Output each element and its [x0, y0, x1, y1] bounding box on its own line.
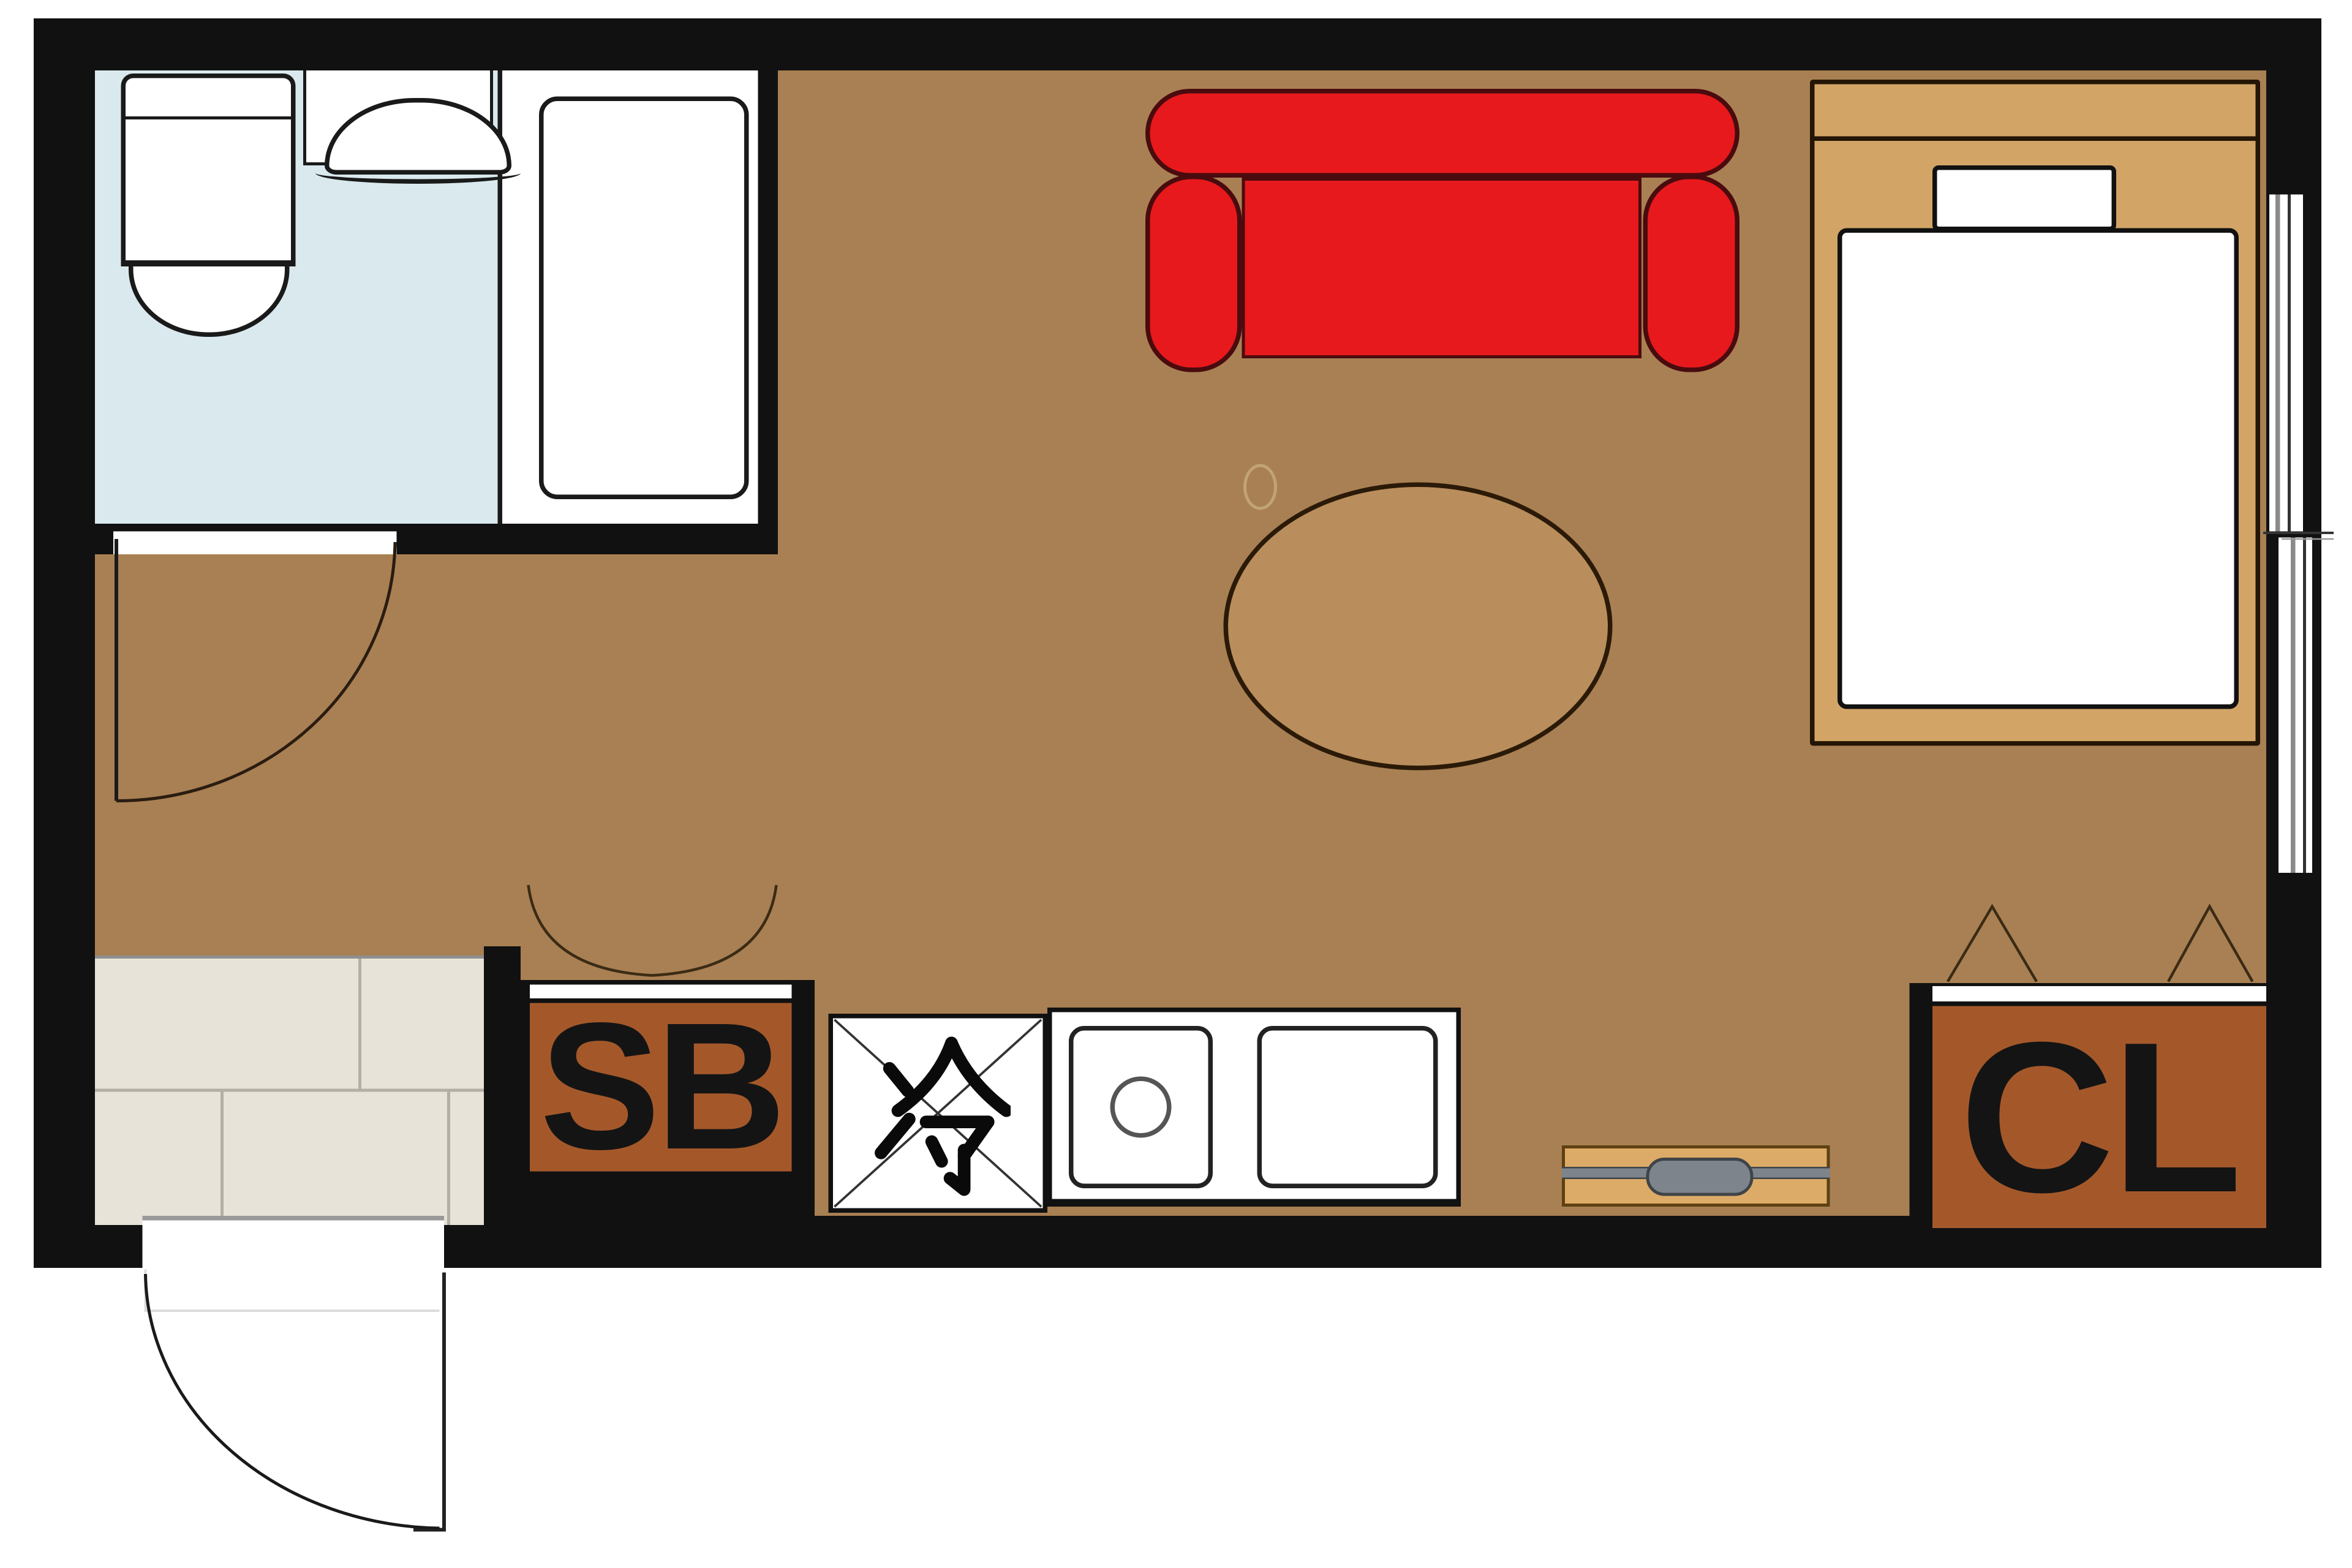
tile-joint [221, 1092, 224, 1226]
entry-door-leaf [413, 1273, 444, 1530]
bed-headboard-line [1810, 137, 2260, 141]
window-lower-pane [2278, 538, 2312, 873]
sofa-armrest-left [1145, 175, 1242, 372]
bathroom-wall-right [758, 18, 778, 554]
entry-doorway [143, 1216, 445, 1268]
sofa-seat [1242, 178, 1642, 358]
closet: CL [1932, 1006, 2266, 1229]
oval-table [1224, 483, 1613, 771]
toilet-tank [121, 73, 296, 123]
toilet-body [121, 119, 296, 266]
refrigerator-kanji-icon [870, 1031, 1011, 1202]
pillow [1932, 165, 2116, 232]
kitchen-sink [1257, 1026, 1438, 1188]
entry-step-outline [146, 1270, 440, 1311]
shoe-box-label: SB [540, 1003, 782, 1172]
tile-joint [447, 1092, 450, 1226]
shoe-box: SB [530, 1003, 792, 1172]
closet-label: CL [1959, 1010, 2239, 1224]
window-upper-pane [2269, 195, 2303, 532]
tile-joint [95, 1089, 484, 1092]
partition-wall [484, 946, 521, 1225]
washbasin-lip [315, 162, 521, 184]
sofa-backrest [1145, 89, 1740, 178]
refrigerator-space: 冷 [829, 1014, 1048, 1213]
entry-door-swing-arc [146, 1274, 440, 1528]
shoe-box-sill [530, 985, 792, 999]
burner-icon [1110, 1077, 1172, 1138]
tv-icon [1646, 1158, 1754, 1196]
bathtub [539, 97, 749, 500]
floor-plan: SB 冷 CL [0, 0, 2352, 1568]
floor-mark [1243, 464, 1277, 510]
sofa-armrest-right [1643, 175, 1740, 372]
tile-joint [358, 959, 361, 1089]
closet-sill [1932, 986, 2266, 1001]
bathroom-doorway [113, 532, 397, 555]
mattress [1838, 228, 2239, 709]
